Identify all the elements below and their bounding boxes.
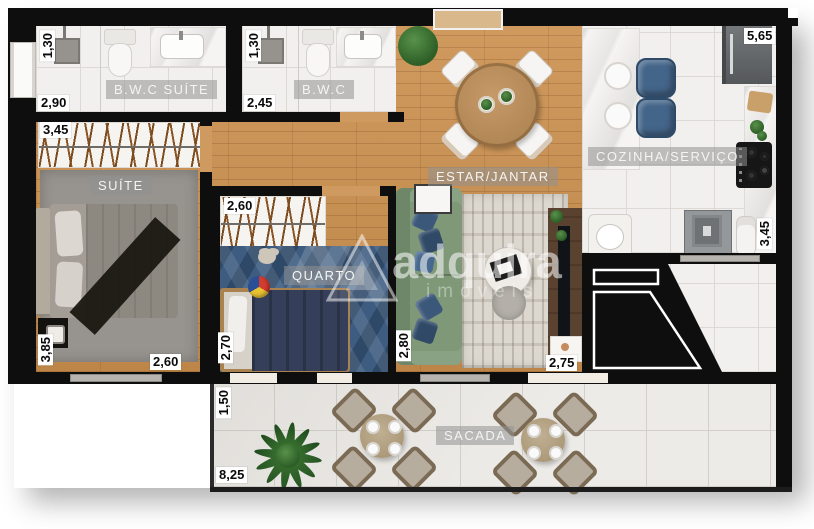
entrance-door-sill [433, 9, 503, 30]
sliding-door [230, 373, 277, 383]
dim-quarto-width: 2,60 [224, 198, 255, 214]
sliding-door [317, 373, 352, 383]
dim-suite-width: 2,60 [150, 354, 181, 370]
label-bwc: B.W.C [294, 80, 354, 99]
label-estar-jantar: ESTAR/JANTAR [428, 167, 558, 186]
dim-closet-width: 3,45 [40, 122, 71, 138]
dim-bwc-width: 2,45 [244, 95, 275, 111]
plate [366, 442, 380, 456]
dim-bwc-suite-depth: 1,30 [40, 30, 55, 61]
kitchen-stool [636, 58, 676, 98]
shower-divider [298, 26, 299, 112]
plate [388, 442, 402, 456]
dim-estar-depth: 2,80 [396, 330, 411, 361]
bed-pillow [54, 210, 83, 257]
plate [366, 420, 380, 434]
dim-servico-depth: 3,45 [757, 218, 772, 249]
shower-head [267, 26, 270, 39]
wall-quarto-right [388, 186, 396, 372]
herbs [757, 131, 767, 141]
beach-ball [248, 276, 270, 298]
label-quarto: QUARTO [284, 266, 364, 285]
window [10, 42, 36, 98]
cutting-board [747, 90, 774, 113]
console-plant [556, 230, 567, 241]
laundry-basin [596, 224, 624, 250]
balcony-rail-bottom [210, 487, 792, 492]
label-cozinha-servico: COZINHA/SERVIÇO [588, 147, 747, 166]
suite-door-opening [200, 126, 212, 172]
water-jug [736, 216, 756, 256]
plate [549, 424, 563, 438]
wall-bath-divider [226, 26, 242, 112]
plate [527, 446, 541, 460]
shower-drain [258, 38, 284, 64]
label-suite: SUÍTE [90, 176, 152, 195]
wall-right [776, 8, 792, 492]
teddy-bear [258, 250, 276, 264]
fridge-handle [730, 34, 733, 74]
burner [746, 147, 757, 158]
door-opening [340, 112, 388, 122]
burner [760, 166, 769, 175]
corner-notch [788, 8, 798, 18]
table-plant [481, 99, 492, 110]
kitchen-stool [636, 98, 676, 138]
shower-head [63, 26, 66, 39]
washer-dial [703, 226, 711, 236]
toilet-bowl [108, 43, 132, 77]
dim-bwc-depth: 1,30 [246, 30, 261, 61]
burner [760, 152, 769, 161]
plant [398, 26, 438, 66]
label-bwc-suite: B.W.C SUÍTE [106, 80, 217, 99]
sofa-pillow [412, 250, 435, 273]
burner [746, 170, 757, 181]
dim-tv-width: 2,75 [546, 355, 577, 371]
place-setting [604, 62, 632, 90]
sofa-cushion-line [412, 274, 460, 276]
sink-faucet [179, 31, 183, 40]
toilet-bowl [306, 43, 330, 77]
label-sacada: SACADA [436, 426, 514, 445]
suite-window [70, 374, 162, 382]
wall-top [8, 8, 798, 26]
dim-sacada-depth: 1,50 [216, 387, 231, 418]
quarto-door-opening [322, 186, 380, 196]
floor-plan: B.W.C SUÍTE B.W.C SUÍTE QUARTO ESTAR/JAN… [0, 0, 814, 529]
dim-cozinha-width: 5,65 [744, 28, 775, 44]
tv [558, 226, 570, 348]
table-plant [501, 91, 512, 102]
sink-faucet [360, 31, 364, 40]
console-plant [550, 210, 563, 223]
shower-drain [54, 38, 80, 64]
side-table [414, 184, 452, 214]
balcony-rail-left [210, 384, 214, 488]
bed-blanket [252, 290, 348, 371]
service-void [582, 264, 722, 372]
living-window [420, 374, 490, 382]
bed-headboard [36, 208, 50, 316]
flower [561, 343, 569, 351]
service-window [680, 255, 760, 262]
ottoman [492, 286, 526, 320]
plate [527, 424, 541, 438]
dim-sacada-width: 8,25 [216, 467, 247, 483]
dim-bwc-suite-width: 2,90 [38, 95, 69, 111]
dim-suite-depth: 3,85 [38, 334, 53, 365]
sliding-door [528, 373, 608, 383]
shower-divider [100, 26, 101, 112]
dim-quarto-depth: 2,70 [218, 332, 233, 363]
plate [388, 420, 402, 434]
place-setting [604, 102, 632, 130]
dining-table [455, 63, 539, 147]
plate [549, 446, 563, 460]
